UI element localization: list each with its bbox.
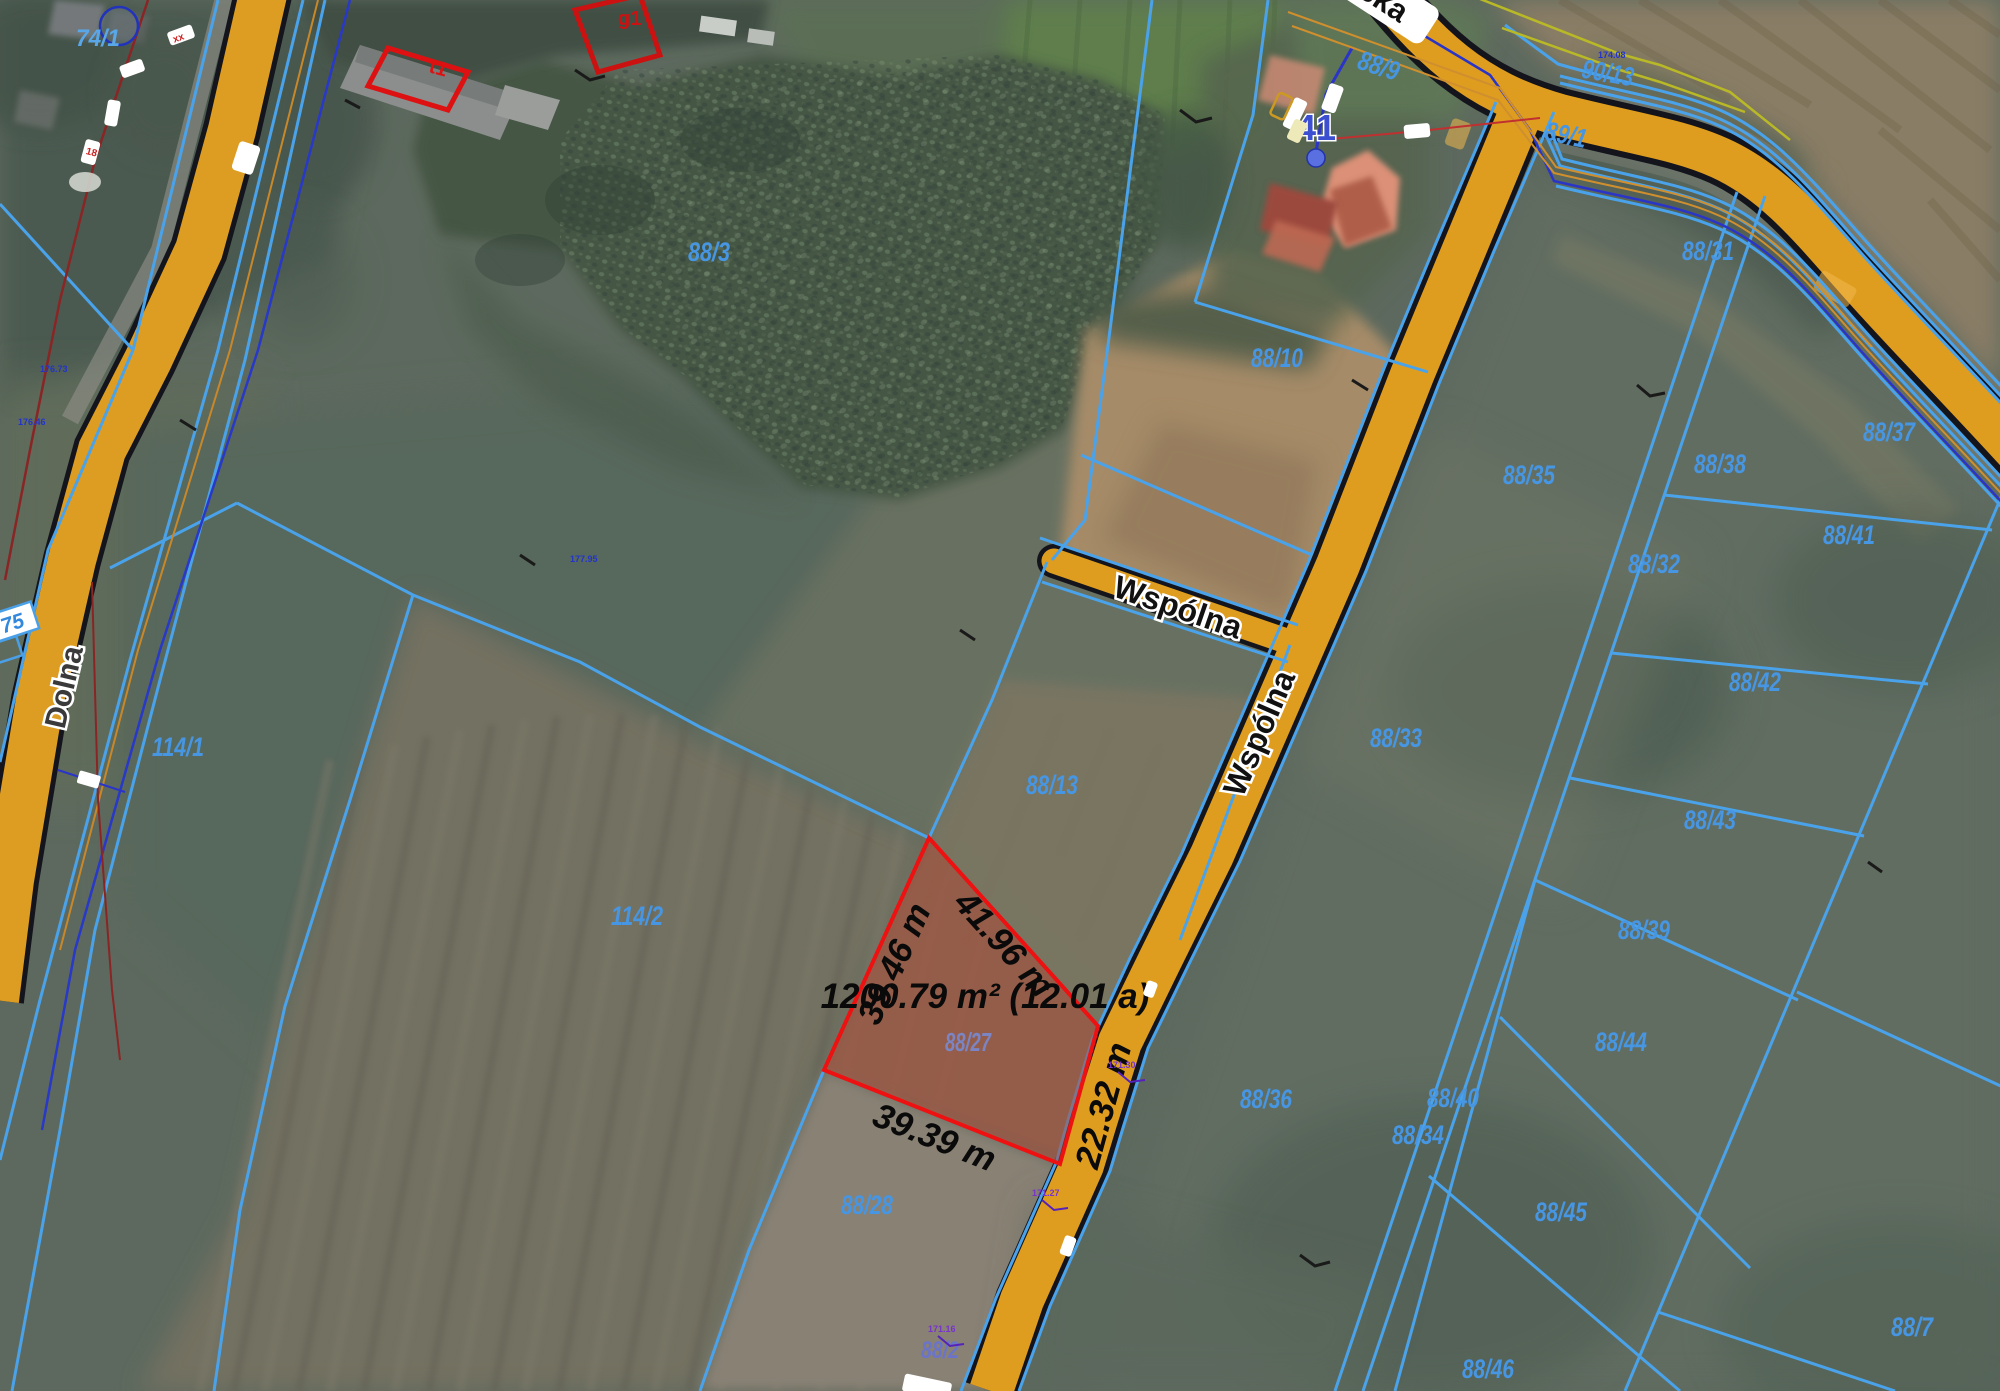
svg-text:74/1: 74/1 <box>76 25 120 52</box>
svg-text:88/10: 88/10 <box>1251 343 1303 373</box>
svg-text:88/31: 88/31 <box>1682 236 1734 266</box>
svg-text:88/36: 88/36 <box>1240 1084 1293 1114</box>
svg-text:171.27: 171.27 <box>1032 1188 1060 1198</box>
svg-text:88/35: 88/35 <box>1503 460 1556 490</box>
svg-text:88/40: 88/40 <box>1427 1083 1479 1113</box>
svg-text:171.30: 171.30 <box>1108 1060 1136 1070</box>
svg-text:88/46: 88/46 <box>1462 1354 1515 1384</box>
svg-text:171.16: 171.16 <box>928 1324 956 1334</box>
svg-text:88/7: 88/7 <box>1891 1312 1935 1342</box>
svg-text:174.08: 174.08 <box>1598 50 1626 60</box>
svg-text:88/32: 88/32 <box>1628 549 1680 579</box>
svg-text:88/33: 88/33 <box>1370 723 1422 753</box>
svg-text:88/39: 88/39 <box>1618 915 1670 945</box>
svg-text:177.95: 177.95 <box>570 554 598 564</box>
svg-text:88/45: 88/45 <box>1535 1197 1588 1227</box>
svg-text:88/27: 88/27 <box>945 1027 992 1057</box>
svg-text:88/28: 88/28 <box>841 1190 893 1220</box>
svg-text:176.46: 176.46 <box>18 417 46 427</box>
svg-text:88/3: 88/3 <box>688 237 730 267</box>
svg-text:176.73: 176.73 <box>40 364 68 374</box>
svg-text:88/41: 88/41 <box>1823 520 1875 550</box>
svg-text:88/34: 88/34 <box>1392 1120 1444 1150</box>
svg-text:88/42: 88/42 <box>1729 667 1781 697</box>
svg-text:g1: g1 <box>618 8 641 30</box>
svg-text:88/43: 88/43 <box>1684 805 1736 835</box>
svg-text:88/44: 88/44 <box>1595 1027 1647 1057</box>
svg-text:88/38: 88/38 <box>1694 449 1746 479</box>
svg-text:114/2: 114/2 <box>611 901 663 931</box>
svg-text:114/1: 114/1 <box>152 732 204 762</box>
svg-text:88/37: 88/37 <box>1863 417 1917 447</box>
svg-text:88/2: 88/2 <box>921 1337 960 1364</box>
svg-text:88/13: 88/13 <box>1026 770 1078 800</box>
